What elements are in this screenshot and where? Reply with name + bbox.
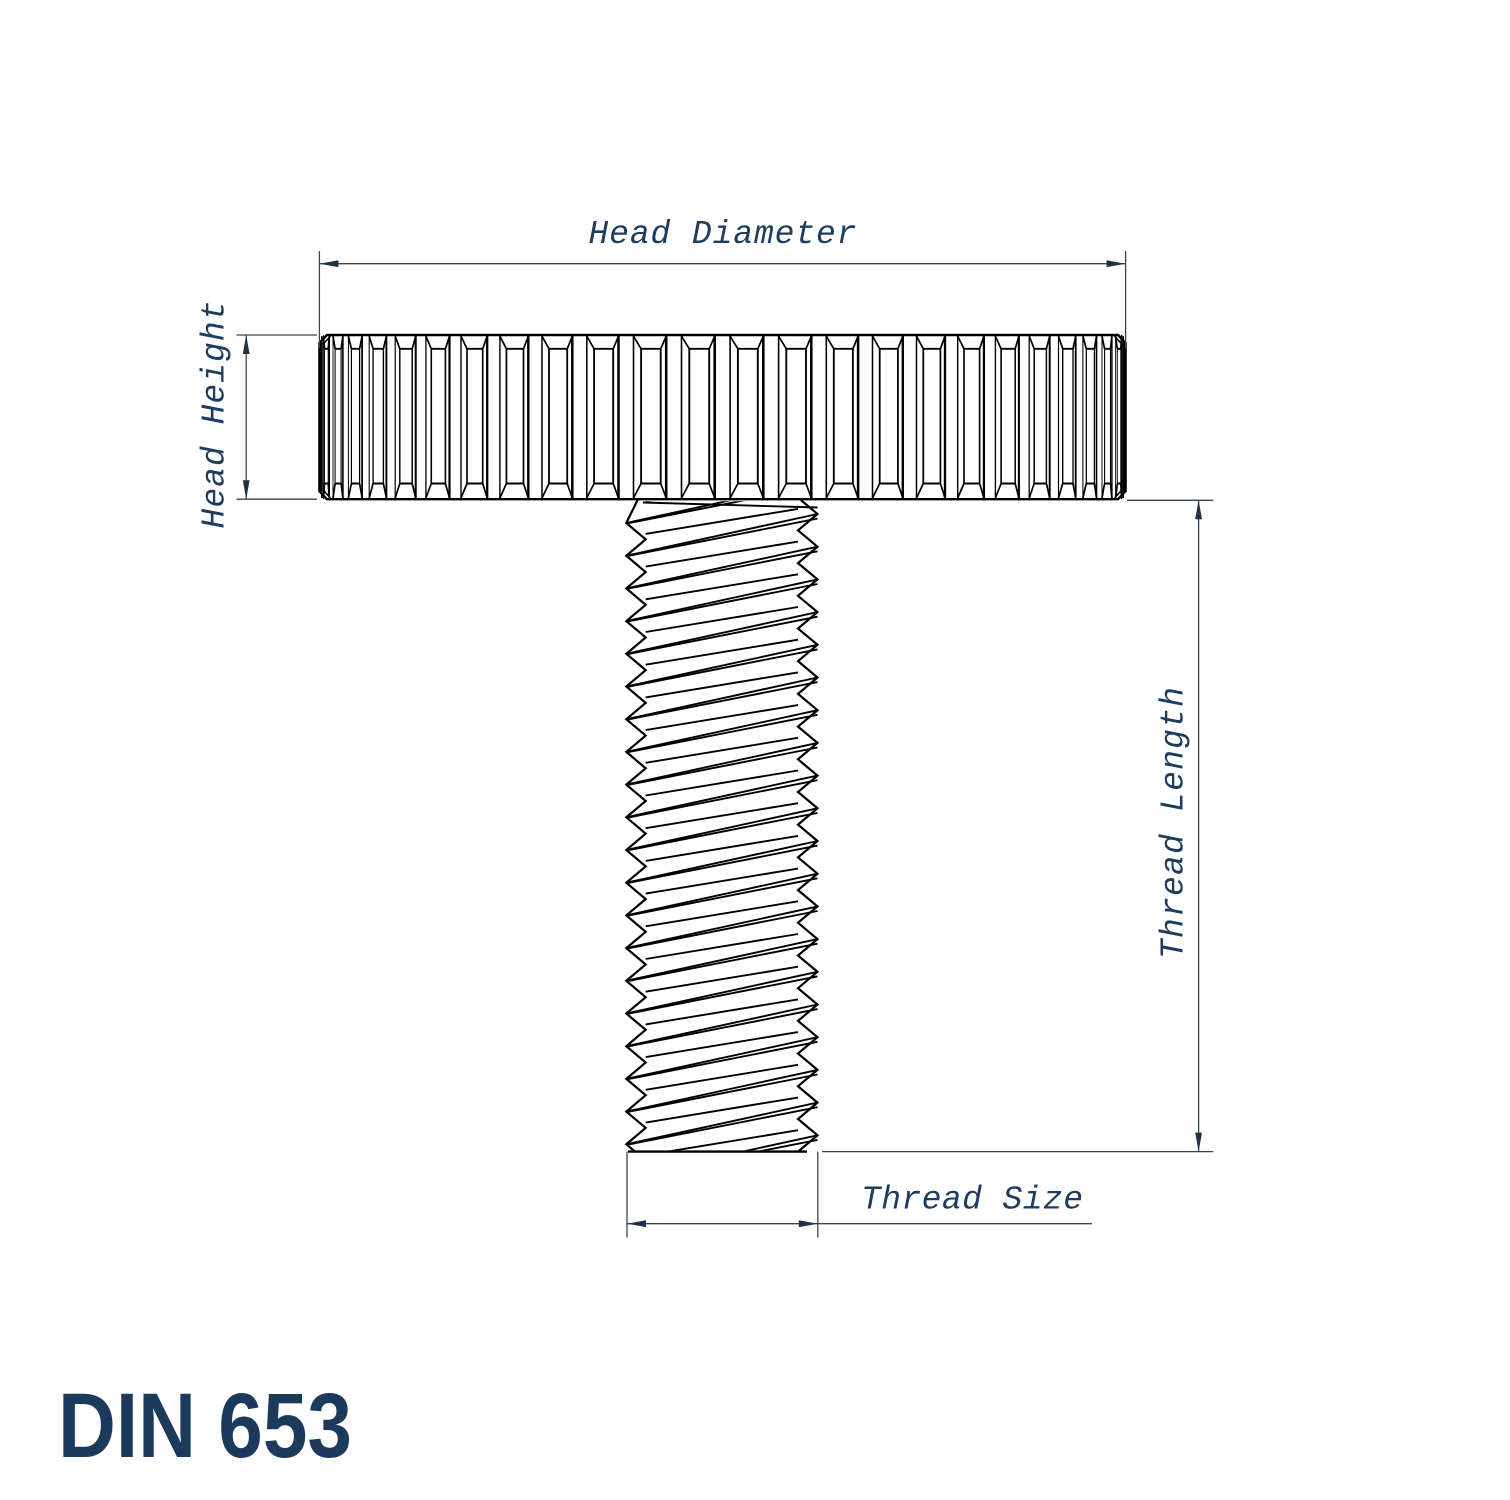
svg-text:DIN 653: DIN 653 — [58, 1375, 352, 1477]
svg-text:Head Height: Head Height — [197, 301, 234, 529]
svg-text:Thread Size: Thread Size — [861, 1182, 1083, 1219]
svg-text:Head Diameter: Head Diameter — [589, 216, 857, 253]
svg-text:Thread Length: Thread Length — [1156, 687, 1193, 959]
